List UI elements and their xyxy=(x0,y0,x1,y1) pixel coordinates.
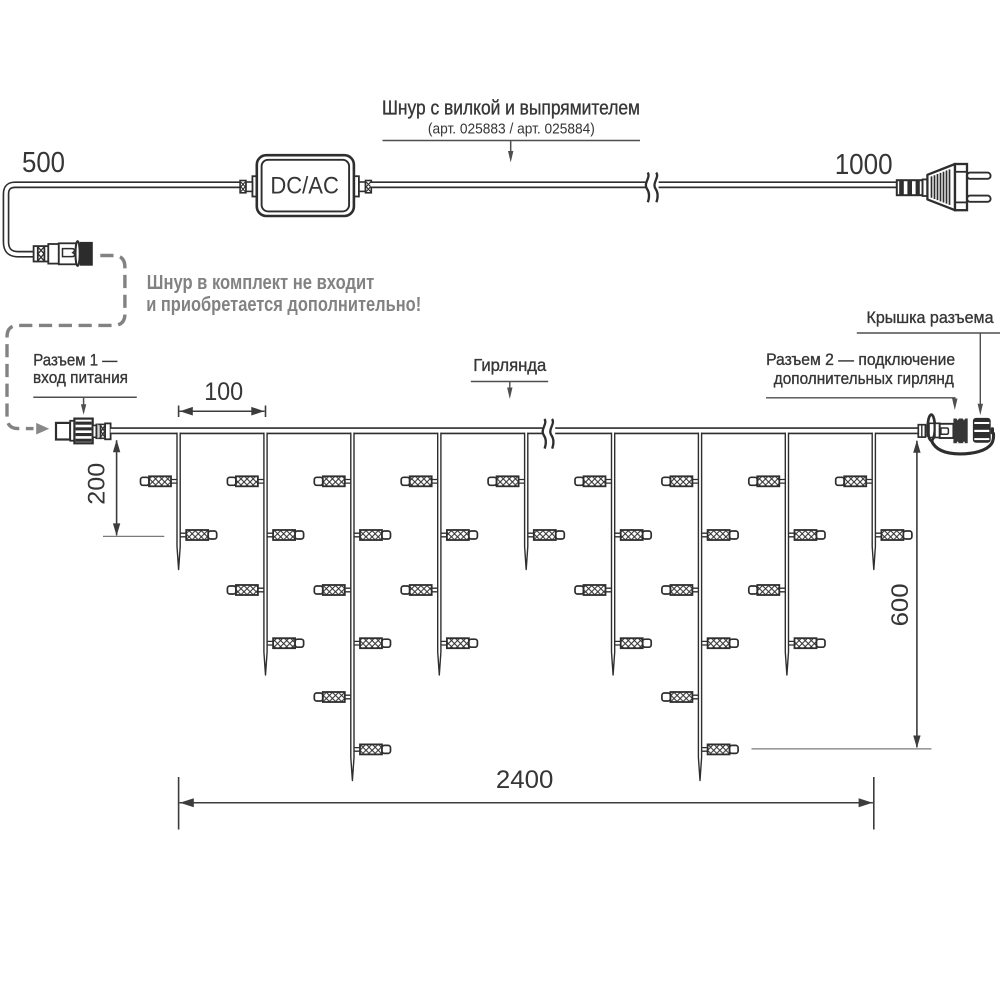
svg-text:Разъем 2 — подключение: Разъем 2 — подключение xyxy=(766,350,955,369)
svg-text:Гирлянда: Гирлянда xyxy=(473,355,546,375)
svg-text:Разъем 1 —: Разъем 1 — xyxy=(33,351,117,370)
svg-text:вход питания: вход питания xyxy=(33,368,128,387)
svg-text:Шнур с вилкой и выпрямителем: Шнур с вилкой и выпрямителем xyxy=(382,97,640,120)
svg-text:2400: 2400 xyxy=(496,766,554,794)
svg-text:дополнительных гирлянд: дополнительных гирлянд xyxy=(774,369,954,388)
svg-text:Крышка разъема: Крышка разъема xyxy=(867,308,995,327)
svg-text:Шнур в комплект не входит: Шнур в комплект не входит xyxy=(147,271,374,294)
svg-text:100: 100 xyxy=(204,378,243,406)
svg-text:1000: 1000 xyxy=(835,149,893,181)
svg-text:500: 500 xyxy=(22,147,65,179)
svg-text:600: 600 xyxy=(887,583,914,626)
svg-text:и приобретается дополнительно!: и приобретается дополнительно! xyxy=(146,293,421,316)
svg-text:(арт. 025883 / арт. 025884): (арт. 025883 / арт. 025884) xyxy=(428,122,595,138)
svg-text:200: 200 xyxy=(84,463,111,505)
svg-text:DC/AC: DC/AC xyxy=(270,173,339,200)
